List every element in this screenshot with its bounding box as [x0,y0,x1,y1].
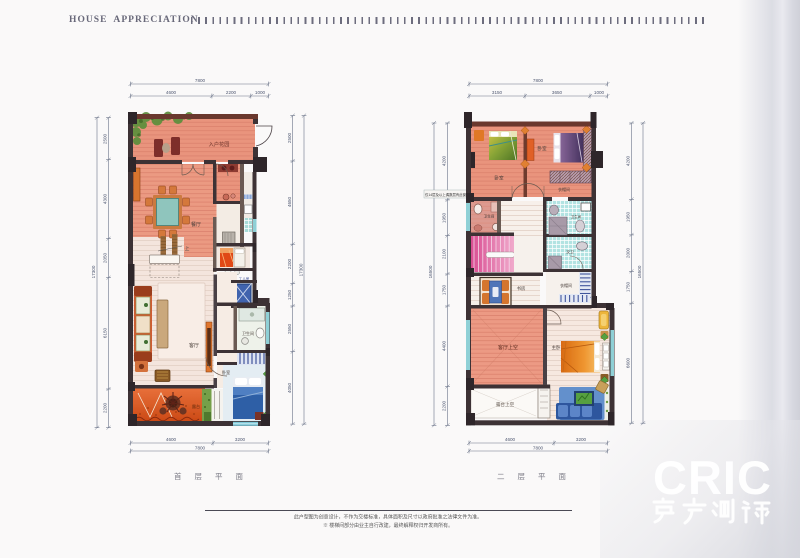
svg-text:6150: 6150 [103,327,108,338]
svg-text:4200: 4200 [442,155,447,166]
svg-text:2500: 2500 [287,132,292,143]
svg-text:7800: 7800 [533,446,544,451]
svg-text:3200: 3200 [235,437,246,442]
svg-text:2500: 2500 [103,133,108,144]
svg-text:客厅: 客厅 [189,342,199,349]
svg-text:露台: 露台 [192,403,200,410]
svg-text:6600: 6600 [626,357,631,368]
svg-text:4600: 4600 [505,437,516,442]
svg-text:4400: 4400 [442,340,447,351]
svg-text:16500: 16500 [637,265,642,278]
svg-text:4200: 4200 [626,155,631,166]
svg-text:卫生间: 卫生间 [484,214,495,219]
svg-text:卧室: 卧室 [222,369,230,376]
svg-text:客厅上空: 客厅上空 [498,344,518,351]
svg-text:衣帽间: 衣帽间 [558,186,570,192]
svg-text:书房: 书房 [517,285,526,292]
svg-text:2200: 2200 [226,90,237,95]
svg-text:2000: 2000 [626,247,631,258]
svg-text:2200: 2200 [103,402,108,413]
svg-text:3200: 3200 [576,437,587,442]
svg-text:2100: 2100 [442,248,447,259]
svg-text:4300: 4300 [103,193,108,204]
svg-text:2200: 2200 [287,258,292,269]
svg-text:卫生间: 卫生间 [242,330,254,336]
svg-text:卫生间: 卫生间 [571,214,582,219]
svg-text:4050: 4050 [287,382,292,393]
svg-text:3150: 3150 [492,90,503,95]
svg-text:主卧: 主卧 [552,344,561,351]
svg-text:2550: 2550 [287,323,292,334]
svg-text:露台上空: 露台上空 [496,401,515,408]
svg-text:4650: 4650 [287,196,292,207]
svg-text:7800: 7800 [195,446,206,451]
svg-text:1000: 1000 [594,90,605,95]
svg-text:1250: 1250 [287,289,292,300]
svg-text:17300: 17300 [91,265,96,278]
svg-text:16500: 16500 [428,265,433,278]
svg-text:3650: 3650 [552,90,563,95]
svg-text:4600: 4600 [166,90,177,95]
svg-text:1000: 1000 [255,90,266,95]
svg-text:卧室: 卧室 [537,145,547,152]
svg-text:7800: 7800 [195,78,206,83]
svg-text:餐厅: 餐厅 [191,221,201,228]
svg-text:次卫: 次卫 [566,250,574,255]
svg-text:仅14层及以上偶数层有此窗: 仅14层及以上偶数层有此窗 [425,192,467,197]
svg-text:2050: 2050 [103,252,108,263]
svg-text:衣帽间: 衣帽间 [560,282,572,288]
svg-text:1950: 1950 [442,212,447,223]
svg-text:卧室: 卧室 [494,175,504,182]
svg-text:1750: 1750 [626,281,631,292]
svg-text:1950: 1950 [626,211,631,222]
svg-text:上: 上 [185,245,190,251]
svg-text:4600: 4600 [166,437,177,442]
svg-text:17300: 17300 [299,263,304,276]
svg-text:2200: 2200 [442,400,447,411]
svg-text:1750: 1750 [442,284,447,295]
svg-text:7800: 7800 [533,78,544,83]
